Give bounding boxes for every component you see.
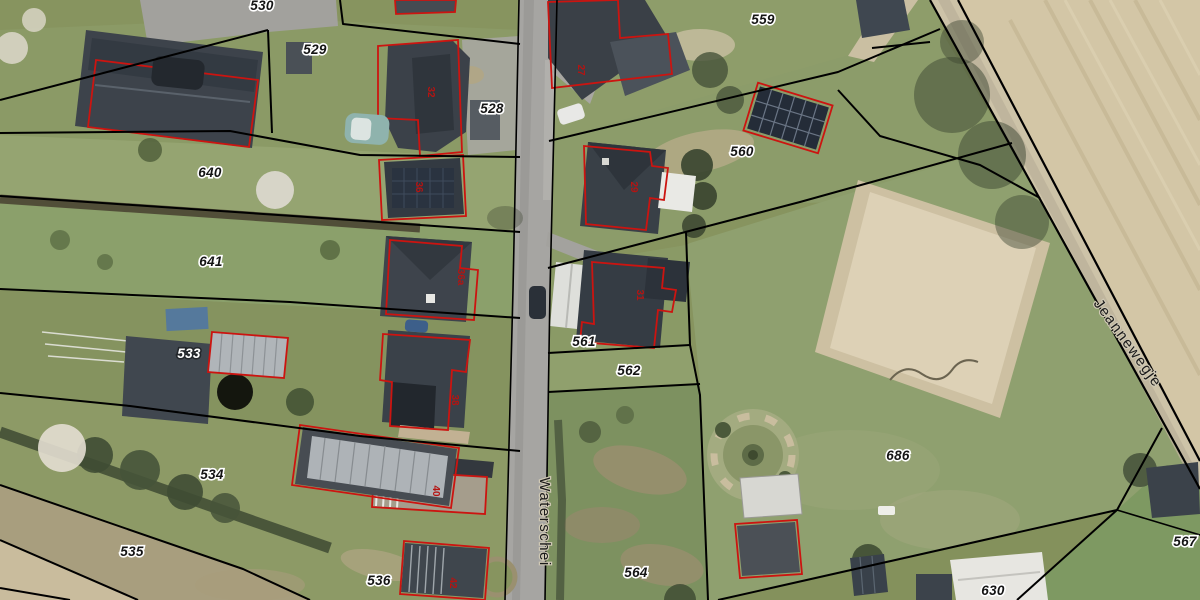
house-number-31: 31 xyxy=(634,289,645,301)
building-house-38 xyxy=(380,330,470,444)
parcel-label-562: 562 xyxy=(617,363,641,378)
parcel-label-686: 686 xyxy=(886,448,910,463)
street-label-waterschei: Waterschei xyxy=(536,477,553,566)
parcel-label-533: 533 xyxy=(177,346,201,361)
aerial-map-canvas[interactable]: 530 529 528 640 641 533 534 535 536 559 … xyxy=(0,0,1200,600)
shed-white xyxy=(740,474,802,518)
parcel-label-640: 640 xyxy=(198,165,222,180)
parcel-label-529: 529 xyxy=(303,42,327,57)
house-number-36a: 36a xyxy=(455,269,466,286)
parcel-label-536: 536 xyxy=(367,573,391,588)
house-number-40: 40 xyxy=(430,485,441,497)
small-greenhouse xyxy=(850,554,888,596)
parcel-label-567: 567 xyxy=(1173,534,1198,549)
parcel-label-560: 560 xyxy=(730,144,754,159)
house-number-27: 27 xyxy=(575,64,586,76)
house-number-38: 38 xyxy=(449,394,460,406)
house-number-42: 42 xyxy=(447,577,458,589)
building-greenhouse-42 xyxy=(400,541,489,600)
parcel-label-535: 535 xyxy=(120,544,144,559)
parcel-label-564: 564 xyxy=(624,565,648,580)
house-number-36: 36 xyxy=(413,181,424,193)
building-top-edge xyxy=(395,0,456,14)
house-number-29: 29 xyxy=(628,181,639,193)
parcel-label-534: 534 xyxy=(200,467,224,482)
shed-red-outlined xyxy=(735,520,802,578)
parcel-label-630: 630 xyxy=(981,583,1005,598)
parcel-label-528: 528 xyxy=(480,101,504,116)
parcel-label-561: 561 xyxy=(572,334,595,349)
building-567 xyxy=(1146,462,1200,518)
parcel-label-530: 530 xyxy=(250,0,274,13)
parcel-label-641: 641 xyxy=(199,254,222,269)
parcel-label-559: 559 xyxy=(751,12,775,27)
house-number-32: 32 xyxy=(425,86,436,98)
map-svg: 530 529 528 640 641 533 534 535 536 559 … xyxy=(0,0,1200,600)
